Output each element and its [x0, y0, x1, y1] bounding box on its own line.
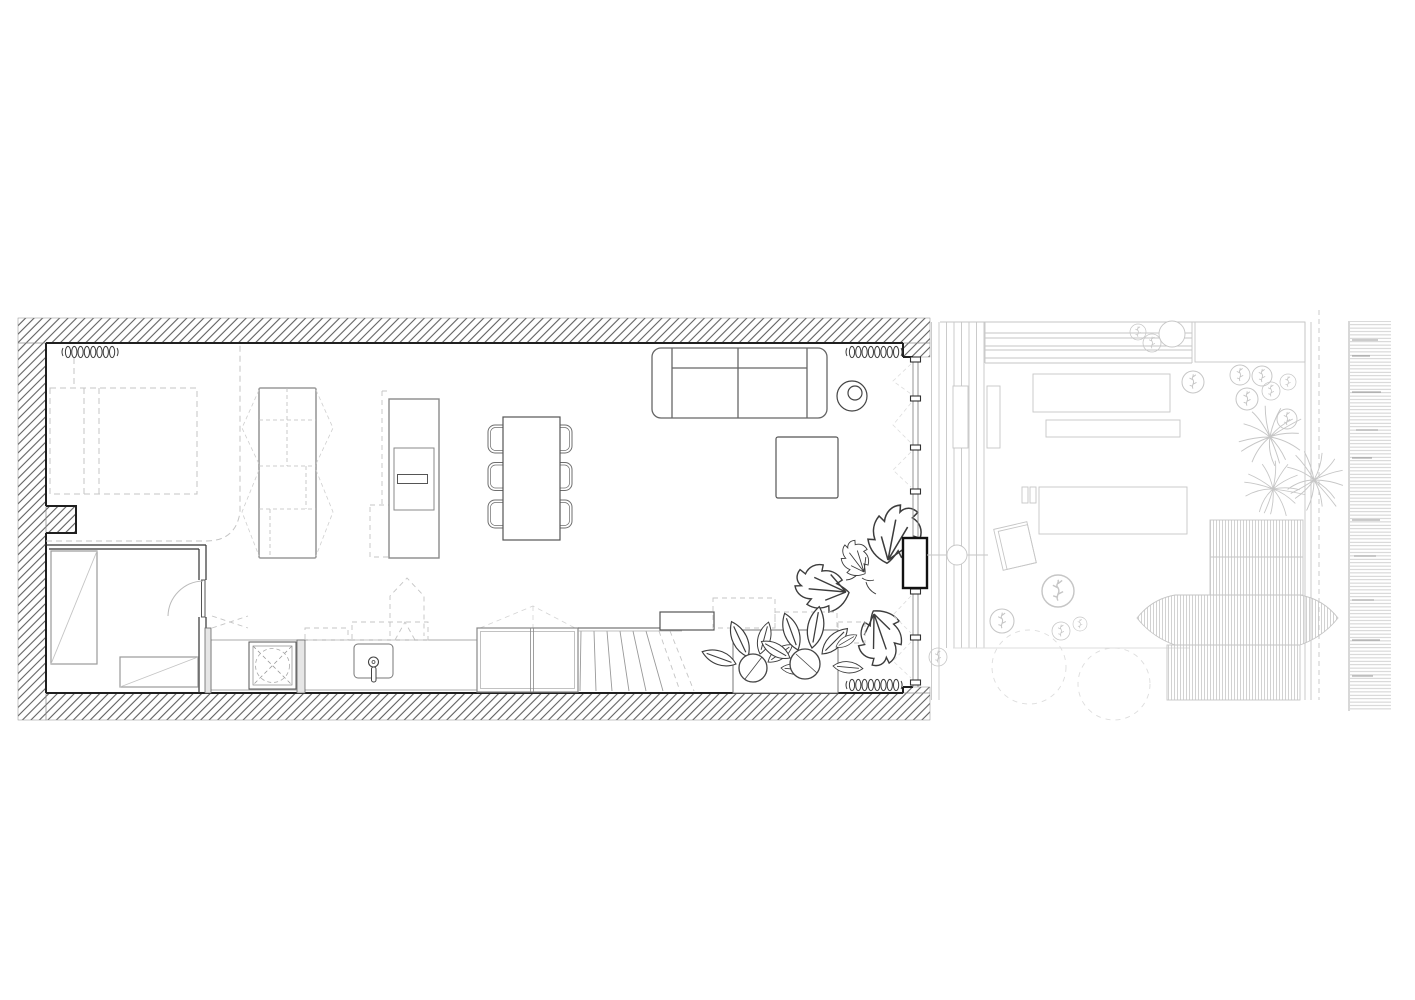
winder-stairs: [578, 628, 694, 691]
plain-shrub: [1159, 321, 1185, 347]
radiator: [846, 346, 902, 357]
sun-lounger: [994, 522, 1037, 571]
sink: [354, 644, 393, 682]
bed-pillow-lines: [74, 358, 99, 494]
radiator: [846, 679, 902, 690]
shower-tray: [51, 551, 97, 664]
floor-plan-page: [0, 0, 1415, 1000]
ornamental-grasses: [1234, 406, 1349, 528]
pivot-door: [903, 538, 927, 588]
stair-area: [477, 606, 714, 692]
deck-planter: [987, 386, 1000, 448]
skylight-dashed: [480, 606, 575, 628]
island-handle: [398, 475, 428, 484]
path-edges: [1305, 322, 1311, 700]
sofa: [652, 348, 827, 418]
deck-boards: [932, 322, 1191, 700]
round-side-table: [837, 381, 867, 411]
dining-set: [488, 417, 572, 540]
glass-balustrade: [477, 628, 578, 692]
floor-plan-drawing: [0, 0, 1415, 1000]
coffee-table: [776, 437, 838, 498]
dining-table: [503, 417, 560, 540]
hedge-fence: [1349, 321, 1391, 711]
terrace-stool: [1022, 487, 1028, 503]
bathroom: [45, 545, 206, 693]
bed-dashed: [50, 388, 197, 494]
terrace-bench-low: [1046, 420, 1180, 437]
kitchen-counter: [205, 578, 477, 693]
cooktop: [249, 642, 296, 689]
faucet: [369, 657, 379, 667]
counter-end-panel: [205, 628, 211, 693]
floor-light: [927, 545, 988, 565]
door-leaf: [202, 580, 206, 617]
terrace-table: [1039, 487, 1187, 534]
radiator: [62, 346, 118, 357]
slatted-canopy: [1137, 520, 1338, 700]
terrace-stool: [1030, 487, 1036, 503]
deck-planter: [953, 386, 968, 448]
stair-shelf: [660, 612, 714, 630]
counter-divider-panel: [297, 640, 305, 693]
terrace-bench: [1033, 374, 1170, 412]
bath-bench: [120, 657, 198, 687]
upper-cabinets-dashed: [212, 578, 428, 640]
indoor-planters: [700, 598, 865, 693]
kitchen-island: [370, 391, 439, 558]
terrace: [927, 310, 1391, 720]
tree-canopies-dashed: [992, 630, 1150, 720]
sofa-group: [652, 348, 867, 498]
wardrobe: [242, 388, 333, 558]
door-swing-arc: [168, 581, 203, 616]
